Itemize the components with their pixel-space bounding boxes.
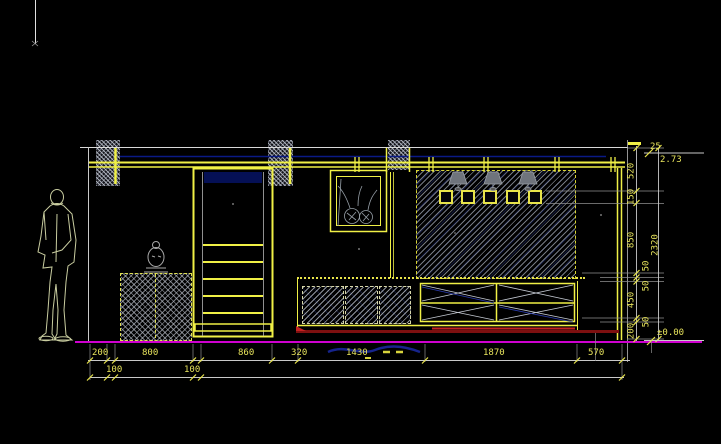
vase-artwork-icon xyxy=(338,179,377,226)
dim-label-right-50b: 50 xyxy=(643,281,652,292)
dim-label-bottom-7: 570 xyxy=(588,349,604,358)
stray-line xyxy=(32,0,38,46)
buddha-statue-icon xyxy=(144,242,168,273)
dim-label-top-gap: 25 xyxy=(650,143,661,152)
dim-label-right-50c: 50 xyxy=(643,317,652,328)
dim-label-right-200: 200 xyxy=(628,323,637,339)
dim-label-bottom-6: 1870 xyxy=(483,349,505,358)
dim-label-bottom-2: 800 xyxy=(142,349,158,358)
linework-overlay xyxy=(0,0,721,444)
level-label-top: 2.73 xyxy=(660,156,682,165)
dim-label-bottom-5: 1430 xyxy=(346,349,368,358)
dim-label-right-total: 2320 xyxy=(652,234,661,256)
stair-shelf-unit xyxy=(194,169,273,337)
dim-label-bottom-1: 200 xyxy=(92,349,108,358)
floor-lines xyxy=(75,326,702,342)
dim-label-right-520: 520 xyxy=(628,163,637,179)
dim-label-right-150: 150 xyxy=(628,189,637,205)
dim-label-right-850: 850 xyxy=(628,232,637,248)
wall-lamp-icon xyxy=(449,172,537,191)
cad-elevation-drawing: 200 800 860 320 1430 1870 570 100 100 52… xyxy=(0,0,721,444)
ceiling-structure xyxy=(80,144,641,185)
dim-label-sub-1: 100 xyxy=(106,366,122,375)
dimension-lines-right xyxy=(546,145,664,342)
dim-label-sub-2: 100 xyxy=(184,366,200,375)
level-label-floor: ±0.00 xyxy=(657,329,684,338)
red-marker xyxy=(296,326,306,331)
tv-cabinet xyxy=(297,278,578,333)
dim-label-right-50a: 50 xyxy=(643,261,652,272)
dim-label-bottom-4: 320 xyxy=(291,349,307,358)
watermark-scribble xyxy=(232,203,602,352)
picture-frame xyxy=(331,171,387,232)
person-figure xyxy=(38,190,76,342)
dim-label-bottom-3: 860 xyxy=(238,349,254,358)
dim-label-right-450: 450 xyxy=(628,292,637,308)
